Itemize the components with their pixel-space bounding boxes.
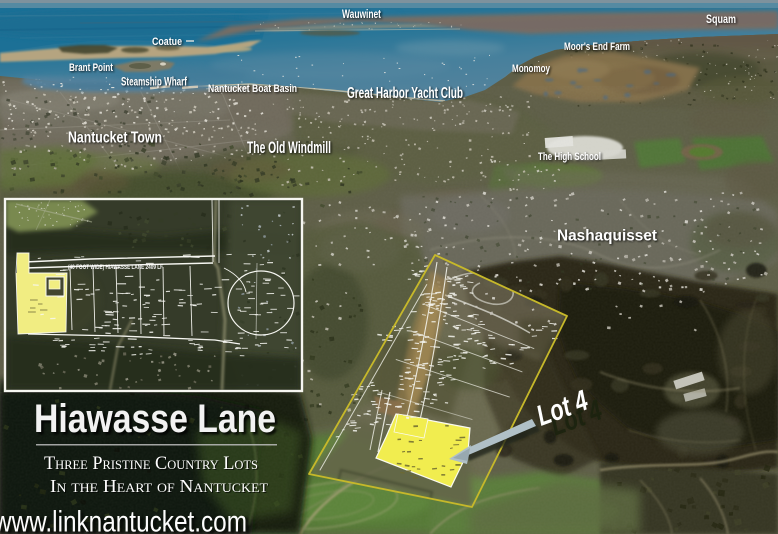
svg-text:Wauwinet: Wauwinet bbox=[342, 7, 381, 21]
svg-text:Nashaquisset: Nashaquisset bbox=[557, 228, 658, 245]
svg-text:(40 FOOT WIDE) HIAWASSE LANE: (40 FOOT WIDE) HIAWASSE LANE 2409 LF bbox=[68, 264, 163, 271]
svg-text:Three Pristine Country Lots: Three Pristine Country Lots bbox=[44, 453, 258, 474]
svg-text:The High School: The High School bbox=[538, 151, 601, 163]
svg-text:The Old Windmill: The Old Windmill bbox=[247, 139, 331, 157]
svg-text:Great Harbor Yacht Club: Great Harbor Yacht Club bbox=[347, 85, 463, 102]
svg-text:Hiawasse Lane: Hiawasse Lane bbox=[34, 397, 276, 441]
svg-text:Nantucket Boat Basin: Nantucket Boat Basin bbox=[208, 83, 297, 95]
svg-text:Brant Point: Brant Point bbox=[69, 62, 113, 74]
svg-text:Coatue: Coatue bbox=[152, 36, 182, 48]
svg-text:Nantucket Town: Nantucket Town bbox=[68, 130, 162, 147]
svg-text:Steamship Wharf: Steamship Wharf bbox=[121, 77, 187, 89]
svg-text:Monomoy: Monomoy bbox=[512, 63, 551, 75]
svg-text:www.linknantucket.com: www.linknantucket.com bbox=[0, 506, 247, 534]
svg-text:In the Heart of Nantucket: In the Heart of Nantucket bbox=[50, 476, 268, 496]
svg-text:Moor's End Farm: Moor's End Farm bbox=[564, 41, 630, 53]
svg-text:Squam: Squam bbox=[706, 14, 736, 26]
